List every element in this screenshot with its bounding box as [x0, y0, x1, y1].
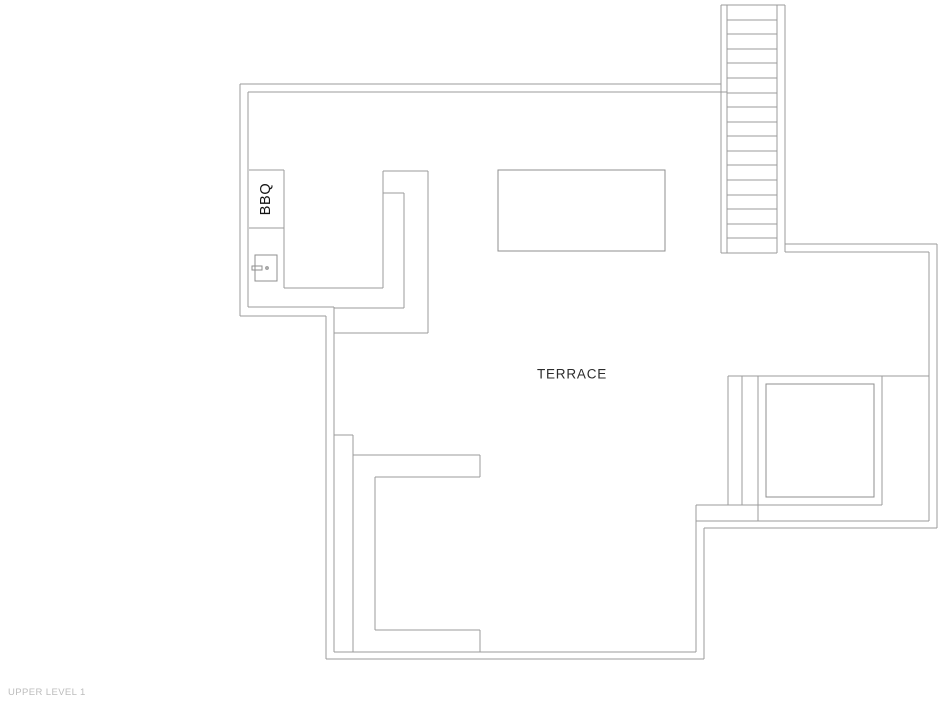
terrace-room-label: TERRACE [537, 367, 607, 382]
level-title: UPPER LEVEL 1 [8, 687, 86, 698]
floor-plan: TERRACE BBQ UPPER LEVEL 1 [0, 0, 943, 712]
plan-object-rect [252, 266, 262, 270]
bbq-label: BBQ [258, 183, 274, 215]
floor-plan-drawing [0, 0, 943, 712]
plan-object-rect [498, 170, 665, 251]
plan-object-dot [266, 267, 269, 270]
plan-object-rect [766, 384, 874, 497]
